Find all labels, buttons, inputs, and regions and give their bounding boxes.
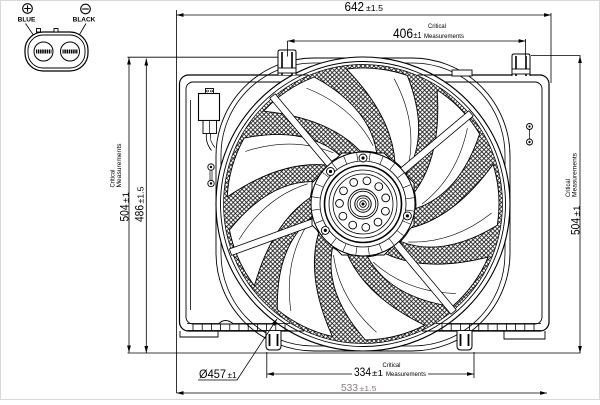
svg-text:±1: ±1: [228, 371, 238, 380]
svg-text:533: 533: [341, 382, 358, 394]
svg-text:504: 504: [118, 204, 132, 221]
svg-text:Measurements: Measurements: [116, 144, 123, 188]
svg-text:±1: ±1: [573, 205, 582, 217]
svg-text:Critical: Critical: [383, 362, 401, 369]
svg-text:±1.5: ±1.5: [366, 4, 384, 13]
svg-text:406: 406: [393, 25, 413, 41]
svg-text:486: 486: [133, 205, 147, 222]
svg-text:±1.5: ±1.5: [360, 384, 377, 393]
svg-text:642: 642: [345, 0, 365, 14]
svg-text:±1: ±1: [372, 369, 384, 378]
svg-text:±1: ±1: [414, 31, 422, 40]
svg-text:Ø457: Ø457: [199, 367, 226, 381]
svg-text:BLUE: BLUE: [18, 17, 36, 24]
svg-text:Measurements: Measurements: [572, 153, 579, 197]
svg-text:Critical: Critical: [428, 23, 446, 30]
svg-text:BLACK: BLACK: [73, 17, 96, 24]
svg-text:±1.5: ±1.5: [137, 186, 146, 204]
svg-text:Measurements: Measurements: [424, 33, 464, 40]
svg-text:504: 504: [569, 218, 583, 235]
svg-text:±1: ±1: [122, 191, 131, 203]
svg-text:334: 334: [354, 365, 371, 379]
svg-text:Measurements: Measurements: [386, 371, 426, 378]
